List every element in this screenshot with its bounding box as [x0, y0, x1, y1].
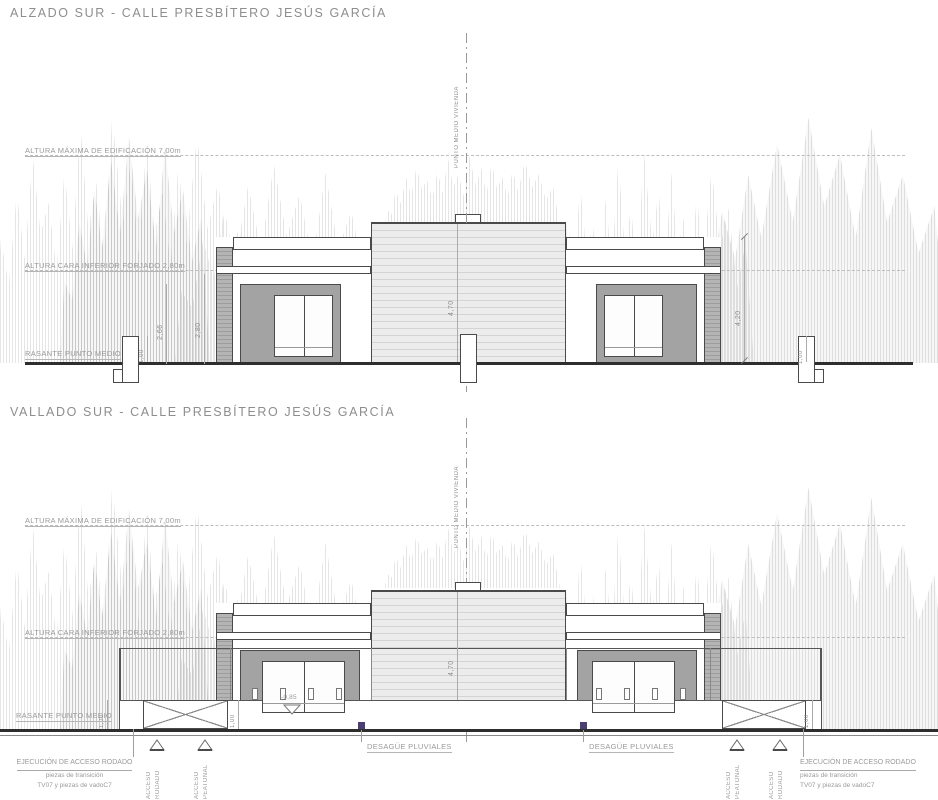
- dim-wall-a: 2,66: [157, 296, 164, 340]
- dim-line: [204, 274, 205, 364]
- right-roof-slab: [566, 632, 721, 640]
- leader-line: [133, 729, 134, 757]
- leader-line: [583, 730, 584, 742]
- fence-baluster: [308, 688, 314, 700]
- fence-baluster: [652, 688, 658, 700]
- dim-line: [806, 336, 807, 362]
- access-arrow-icon: [772, 739, 788, 751]
- access-word: ACCESO: [726, 755, 732, 799]
- dim-gate-left: 1,00: [230, 702, 236, 728]
- rasante-label: RASANTE PUNTO MEDIO: [25, 349, 121, 360]
- access-arrow-icon: [197, 739, 213, 751]
- left-boundary-footing: [122, 336, 139, 383]
- center-axis-line: [466, 732, 467, 744]
- right-pier: [704, 247, 721, 364]
- window-mullion: [634, 662, 635, 712]
- access-note-right: EJECUCIÓN DE ACCESO RODADO piezas de tra…: [800, 758, 932, 791]
- left-parapet: [233, 237, 371, 250]
- fence-post: [710, 648, 711, 700]
- left-gate: [143, 700, 228, 729]
- note-line: EJECUCIÓN DE ACCESO RODADO: [17, 758, 133, 771]
- window-mullion: [304, 662, 305, 712]
- access-arrow-icon: [149, 739, 165, 751]
- fence-baluster: [680, 688, 686, 700]
- street-line: [0, 729, 938, 732]
- access-word: RODADO: [155, 755, 161, 799]
- fence-baluster: [252, 688, 258, 700]
- note-line: TV07 y piezas de vadoC7: [37, 782, 111, 789]
- street-line-secondary: [0, 735, 938, 736]
- drain-label: DESAGÜE PLUVIALES: [367, 742, 452, 753]
- left-pier: [216, 247, 233, 364]
- elevation-alzado-sur: ALZADO SUR - CALLE PRESBÍTERO JESÚS GARC…: [0, 0, 938, 400]
- dim-center-height: 4,70: [448, 636, 455, 676]
- axis-label: PUNTO MEDIO VIVIENDA: [454, 438, 460, 548]
- access-label-rodado: ACCESO RODADO: [146, 755, 164, 799]
- dim-line: [147, 336, 148, 362]
- leader-line: [803, 729, 804, 757]
- dim-line: [238, 700, 239, 729]
- access-note-left: EJECUCIÓN DE ACCESO RODADO piezas de tra…: [12, 758, 137, 791]
- level-marker-icon: [283, 704, 301, 715]
- right-footing-step: [814, 369, 824, 383]
- tree-silhouette: [688, 102, 938, 363]
- left-window: [274, 295, 333, 357]
- access-word: PEATONAL: [203, 755, 209, 799]
- dim-line: [457, 592, 458, 700]
- fence-post: [371, 648, 372, 700]
- access-label-peatonal: ACCESO PEATONAL: [726, 755, 744, 799]
- drain-marker: [580, 722, 587, 729]
- slab-height-label: ALTURA CARA INFERIOR FORJADO 2,80m: [25, 628, 185, 639]
- leader-line: [361, 730, 362, 742]
- access-word: ACCESO: [769, 755, 775, 799]
- axis-label: PUNTO MEDIO VIVIENDA: [454, 58, 460, 168]
- dim-line: [744, 237, 745, 362]
- dim-base-right: 1,00: [798, 338, 804, 364]
- left-roof-slab: [216, 632, 371, 640]
- center-axis-line: [466, 418, 467, 582]
- dim-line: [166, 284, 167, 364]
- note-line: piezas de transición: [800, 772, 857, 779]
- dim-base-left: 1,00: [139, 337, 145, 363]
- right-gate: [722, 700, 806, 729]
- access-word: RODADO: [778, 755, 784, 799]
- level-value: -0,85: [281, 694, 297, 701]
- fence-baluster: [336, 688, 342, 700]
- dim-right-height: 4,20: [735, 286, 742, 326]
- dim-line: [457, 224, 458, 362]
- dim-line: [812, 700, 813, 729]
- left-parapet: [233, 603, 371, 616]
- sheet1-title: ALZADO SUR - CALLE PRESBÍTERO JESÚS GARC…: [10, 6, 387, 20]
- note-line: piezas de transición: [46, 772, 103, 779]
- fence-post: [230, 648, 231, 700]
- access-arrow-icon: [729, 739, 745, 751]
- dim-gate-right: 1,00: [804, 702, 810, 728]
- right-parapet: [566, 603, 704, 616]
- window-sill: [593, 703, 674, 704]
- center-post-footing: [460, 334, 477, 383]
- dim-center-height: 4,70: [448, 276, 455, 316]
- access-word: ACCESO: [194, 755, 200, 799]
- window-sill: [263, 703, 344, 704]
- right-parapet: [566, 237, 704, 250]
- right-window: [592, 661, 675, 713]
- left-roof-slab: [216, 266, 371, 274]
- fence-post: [566, 648, 567, 700]
- note-line: EJECUCIÓN DE ACCESO RODADO: [800, 758, 916, 771]
- drain-marker: [358, 722, 365, 729]
- left-window: [262, 661, 345, 713]
- right-roof-slab: [566, 266, 721, 274]
- sheet2-title: VALLADO SUR - CALLE PRESBÍTERO JESÚS GAR…: [10, 405, 395, 419]
- window-sill: [605, 347, 662, 348]
- drawing-canvas: ALZADO SUR - CALLE PRESBÍTERO JESÚS GARC…: [0, 0, 938, 800]
- fence-baluster: [596, 688, 602, 700]
- access-label-rodado: ACCESO RODADO: [769, 755, 787, 799]
- tree-silhouette: [688, 472, 938, 729]
- drain-label: DESAGÜE PLUVIALES: [589, 742, 674, 753]
- fence-top-rail: [120, 648, 821, 649]
- center-axis-line: [466, 33, 467, 223]
- access-word: ACCESO: [146, 755, 152, 799]
- slab-height-label: ALTURA CARA INFERIOR FORJADO 2,80m: [25, 261, 185, 272]
- note-line: TV07 y piezas de vadoC7: [800, 782, 874, 789]
- left-footing-step: [113, 369, 123, 383]
- tree-silhouette: [385, 522, 560, 588]
- elevation-vallado-sur: VALLADO SUR - CALLE PRESBÍTERO JESÚS GAR…: [0, 400, 938, 800]
- window-sill: [275, 347, 332, 348]
- access-label-peatonal: ACCESO PEATONAL: [194, 755, 212, 799]
- max-height-label: ALTURA MÁXIMA DE EDIFICACIÓN 7,00m: [25, 146, 181, 157]
- fence-baluster: [624, 688, 630, 700]
- max-height-label: ALTURA MÁXIMA DE EDIFICACIÓN 7,00m: [25, 516, 181, 527]
- dim-wall-b: 2,80: [195, 294, 202, 338]
- access-word: PEATONAL: [735, 755, 741, 799]
- right-window: [604, 295, 663, 357]
- rasante-label: RASANTE PUNTO MEDIO: [16, 711, 112, 722]
